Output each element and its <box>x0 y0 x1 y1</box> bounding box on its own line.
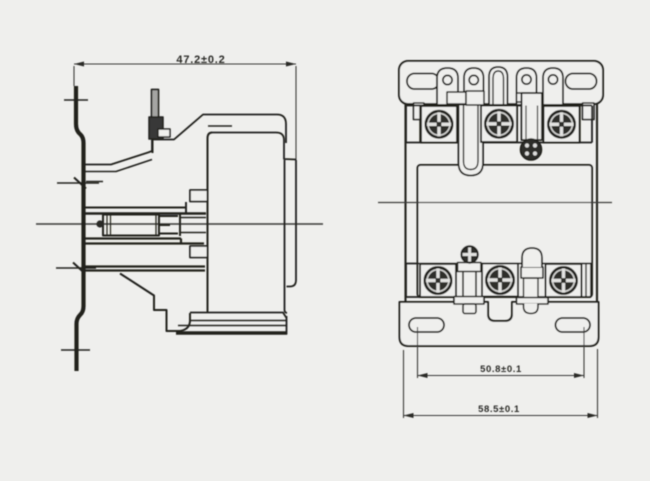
svg-text:58.5±0.1: 58.5±0.1 <box>478 404 520 415</box>
svg-text:47.2±0.2: 47.2±0.2 <box>176 54 225 66</box>
svg-text:50.8±0.1: 50.8±0.1 <box>480 364 522 375</box>
